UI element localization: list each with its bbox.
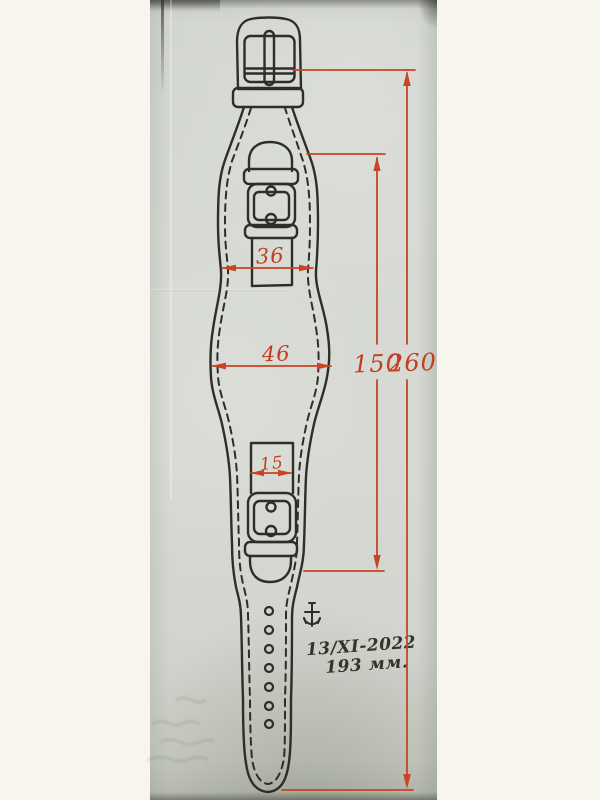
lower-strap-tip: [250, 556, 291, 582]
dimension-middle-width-46: 46: [211, 341, 332, 369]
cuff-strap-outline: [210, 107, 329, 792]
main-buckle-prong: [265, 31, 275, 85]
main-buckle: [233, 18, 303, 108]
dim-label-15: 15: [259, 453, 285, 475]
dimension-upper-width-36: 36: [221, 243, 314, 271]
main-buckle-inner-frame: [245, 36, 295, 82]
main-buckle-frame: [237, 18, 301, 90]
main-buckle-keeper: [233, 88, 303, 107]
anchor-icon: [304, 603, 320, 626]
main-buckle-crossbar: [246, 69, 293, 74]
dim-label-150: 150: [353, 349, 403, 379]
strap-holes: [265, 607, 273, 728]
photo-scene: 13/XI-2022 193 мм. 260 150: [0, 0, 600, 800]
lower-prong-pivot: [267, 503, 276, 512]
lower-mini-keeper: [245, 542, 297, 556]
lower-mini-buckle-window: [254, 501, 290, 534]
dim-label-46: 46: [261, 341, 292, 366]
upper-mini-keeper: [244, 169, 298, 184]
handwritten-note: 13/XI-2022 193 мм.: [305, 633, 418, 680]
strap-pattern-drawing: 13/XI-2022 193 мм. 260 150: [0, 0, 600, 800]
dim-label-36: 36: [255, 243, 285, 268]
ink-bleed-ghost-marks: [148, 698, 214, 761]
upper-strap-tip: [249, 142, 292, 171]
dimension-strap-width-15: 15: [250, 453, 292, 476]
